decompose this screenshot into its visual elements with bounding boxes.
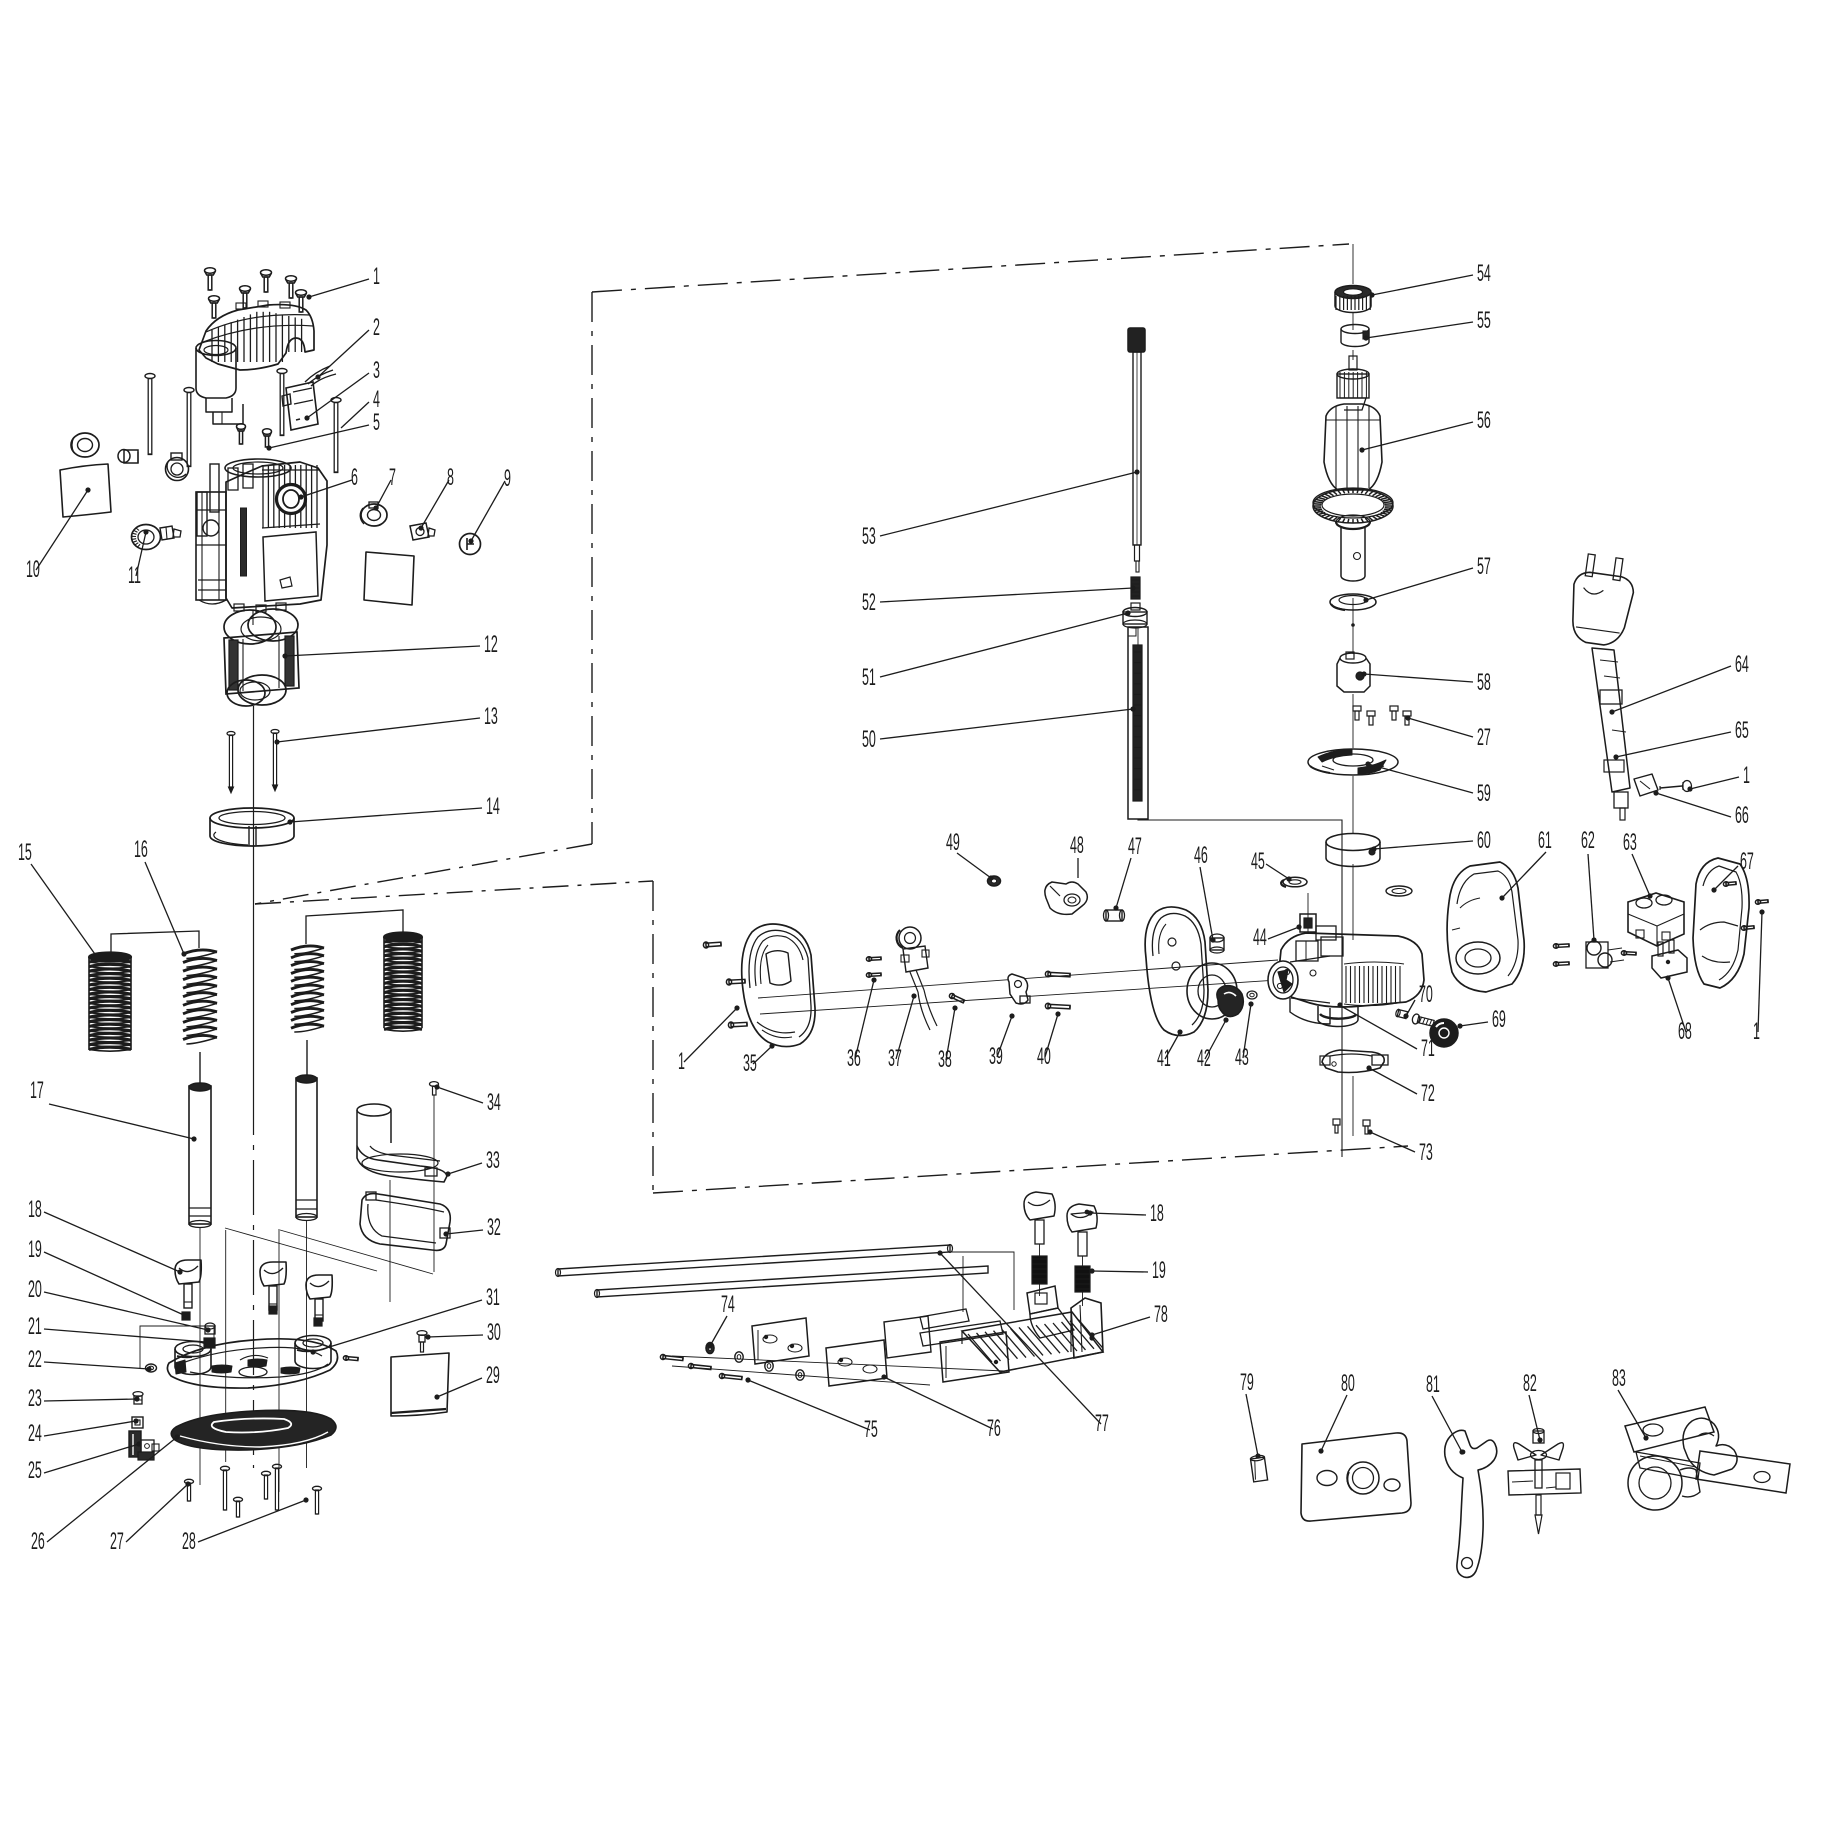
svg-text:38: 38 xyxy=(938,1047,952,1073)
svg-text:35: 35 xyxy=(743,1051,757,1077)
svg-text:75: 75 xyxy=(864,1417,878,1443)
svg-text:29: 29 xyxy=(486,1363,500,1389)
svg-text:48: 48 xyxy=(1070,833,1084,859)
svg-text:54: 54 xyxy=(1477,261,1491,287)
svg-text:9: 9 xyxy=(504,466,511,492)
svg-text:74: 74 xyxy=(721,1292,735,1318)
svg-text:1: 1 xyxy=(373,264,380,290)
svg-text:79: 79 xyxy=(1240,1370,1254,1396)
svg-text:52: 52 xyxy=(862,590,876,616)
svg-text:18: 18 xyxy=(28,1197,42,1223)
svg-text:27: 27 xyxy=(1477,725,1491,751)
svg-text:13: 13 xyxy=(484,704,498,730)
svg-text:18: 18 xyxy=(1150,1201,1164,1227)
svg-text:53: 53 xyxy=(862,524,876,550)
svg-text:1: 1 xyxy=(678,1049,685,1075)
svg-text:71: 71 xyxy=(1421,1036,1435,1062)
svg-text:47: 47 xyxy=(1128,834,1142,860)
svg-text:45: 45 xyxy=(1251,849,1265,875)
svg-text:22: 22 xyxy=(28,1347,42,1373)
svg-text:51: 51 xyxy=(862,665,876,691)
svg-text:82: 82 xyxy=(1523,1371,1537,1397)
svg-text:24: 24 xyxy=(28,1421,42,1447)
svg-text:6: 6 xyxy=(351,465,358,491)
svg-text:60: 60 xyxy=(1477,828,1491,854)
svg-text:63: 63 xyxy=(1623,830,1637,856)
svg-text:76: 76 xyxy=(987,1416,1001,1442)
svg-text:8: 8 xyxy=(447,465,454,491)
svg-text:42: 42 xyxy=(1197,1046,1211,1072)
svg-text:19: 19 xyxy=(1152,1258,1166,1284)
svg-text:20: 20 xyxy=(28,1277,42,1303)
svg-text:43: 43 xyxy=(1235,1045,1249,1071)
svg-text:77: 77 xyxy=(1095,1411,1109,1437)
svg-text:70: 70 xyxy=(1419,982,1433,1008)
svg-text:61: 61 xyxy=(1538,828,1552,854)
svg-text:37: 37 xyxy=(888,1046,902,1072)
svg-text:19: 19 xyxy=(28,1237,42,1263)
svg-text:44: 44 xyxy=(1253,925,1267,951)
svg-text:80: 80 xyxy=(1341,1371,1355,1397)
svg-text:14: 14 xyxy=(486,794,500,820)
svg-text:73: 73 xyxy=(1419,1140,1433,1166)
svg-text:59: 59 xyxy=(1477,781,1491,807)
svg-text:62: 62 xyxy=(1581,828,1595,854)
svg-text:58: 58 xyxy=(1477,670,1491,696)
svg-text:64: 64 xyxy=(1735,652,1749,678)
svg-text:12: 12 xyxy=(484,632,498,658)
svg-text:81: 81 xyxy=(1426,1372,1440,1398)
svg-text:72: 72 xyxy=(1421,1081,1435,1107)
svg-text:1: 1 xyxy=(1743,763,1750,789)
svg-text:21: 21 xyxy=(28,1314,42,1340)
svg-text:30: 30 xyxy=(487,1320,501,1346)
svg-text:27: 27 xyxy=(110,1529,124,1555)
svg-text:41: 41 xyxy=(1157,1046,1171,1072)
svg-text:33: 33 xyxy=(486,1148,500,1174)
svg-text:3: 3 xyxy=(373,358,380,384)
svg-text:5: 5 xyxy=(373,410,380,436)
svg-text:26: 26 xyxy=(31,1529,45,1555)
svg-text:68: 68 xyxy=(1678,1019,1692,1045)
svg-text:69: 69 xyxy=(1492,1007,1506,1033)
svg-text:25: 25 xyxy=(28,1458,42,1484)
svg-text:67: 67 xyxy=(1740,849,1754,875)
svg-text:50: 50 xyxy=(862,727,876,753)
svg-text:11: 11 xyxy=(128,563,141,589)
svg-text:28: 28 xyxy=(182,1529,196,1555)
svg-text:16: 16 xyxy=(134,837,148,863)
svg-text:36: 36 xyxy=(847,1046,861,1072)
svg-text:7: 7 xyxy=(389,465,396,491)
svg-text:83: 83 xyxy=(1612,1366,1626,1392)
svg-text:2: 2 xyxy=(373,315,380,341)
svg-text:15: 15 xyxy=(18,840,32,866)
svg-text:34: 34 xyxy=(487,1090,501,1116)
svg-text:56: 56 xyxy=(1477,408,1491,434)
svg-text:32: 32 xyxy=(487,1215,501,1241)
svg-text:46: 46 xyxy=(1194,843,1208,869)
svg-text:49: 49 xyxy=(946,830,960,856)
svg-text:65: 65 xyxy=(1735,718,1749,744)
svg-text:78: 78 xyxy=(1154,1302,1168,1328)
svg-text:55: 55 xyxy=(1477,308,1491,334)
svg-text:31: 31 xyxy=(486,1285,500,1311)
svg-text:10: 10 xyxy=(26,557,40,583)
svg-text:23: 23 xyxy=(28,1386,42,1412)
svg-text:66: 66 xyxy=(1735,803,1749,829)
svg-text:40: 40 xyxy=(1037,1044,1051,1070)
svg-text:17: 17 xyxy=(30,1078,44,1104)
svg-text:57: 57 xyxy=(1477,554,1491,580)
